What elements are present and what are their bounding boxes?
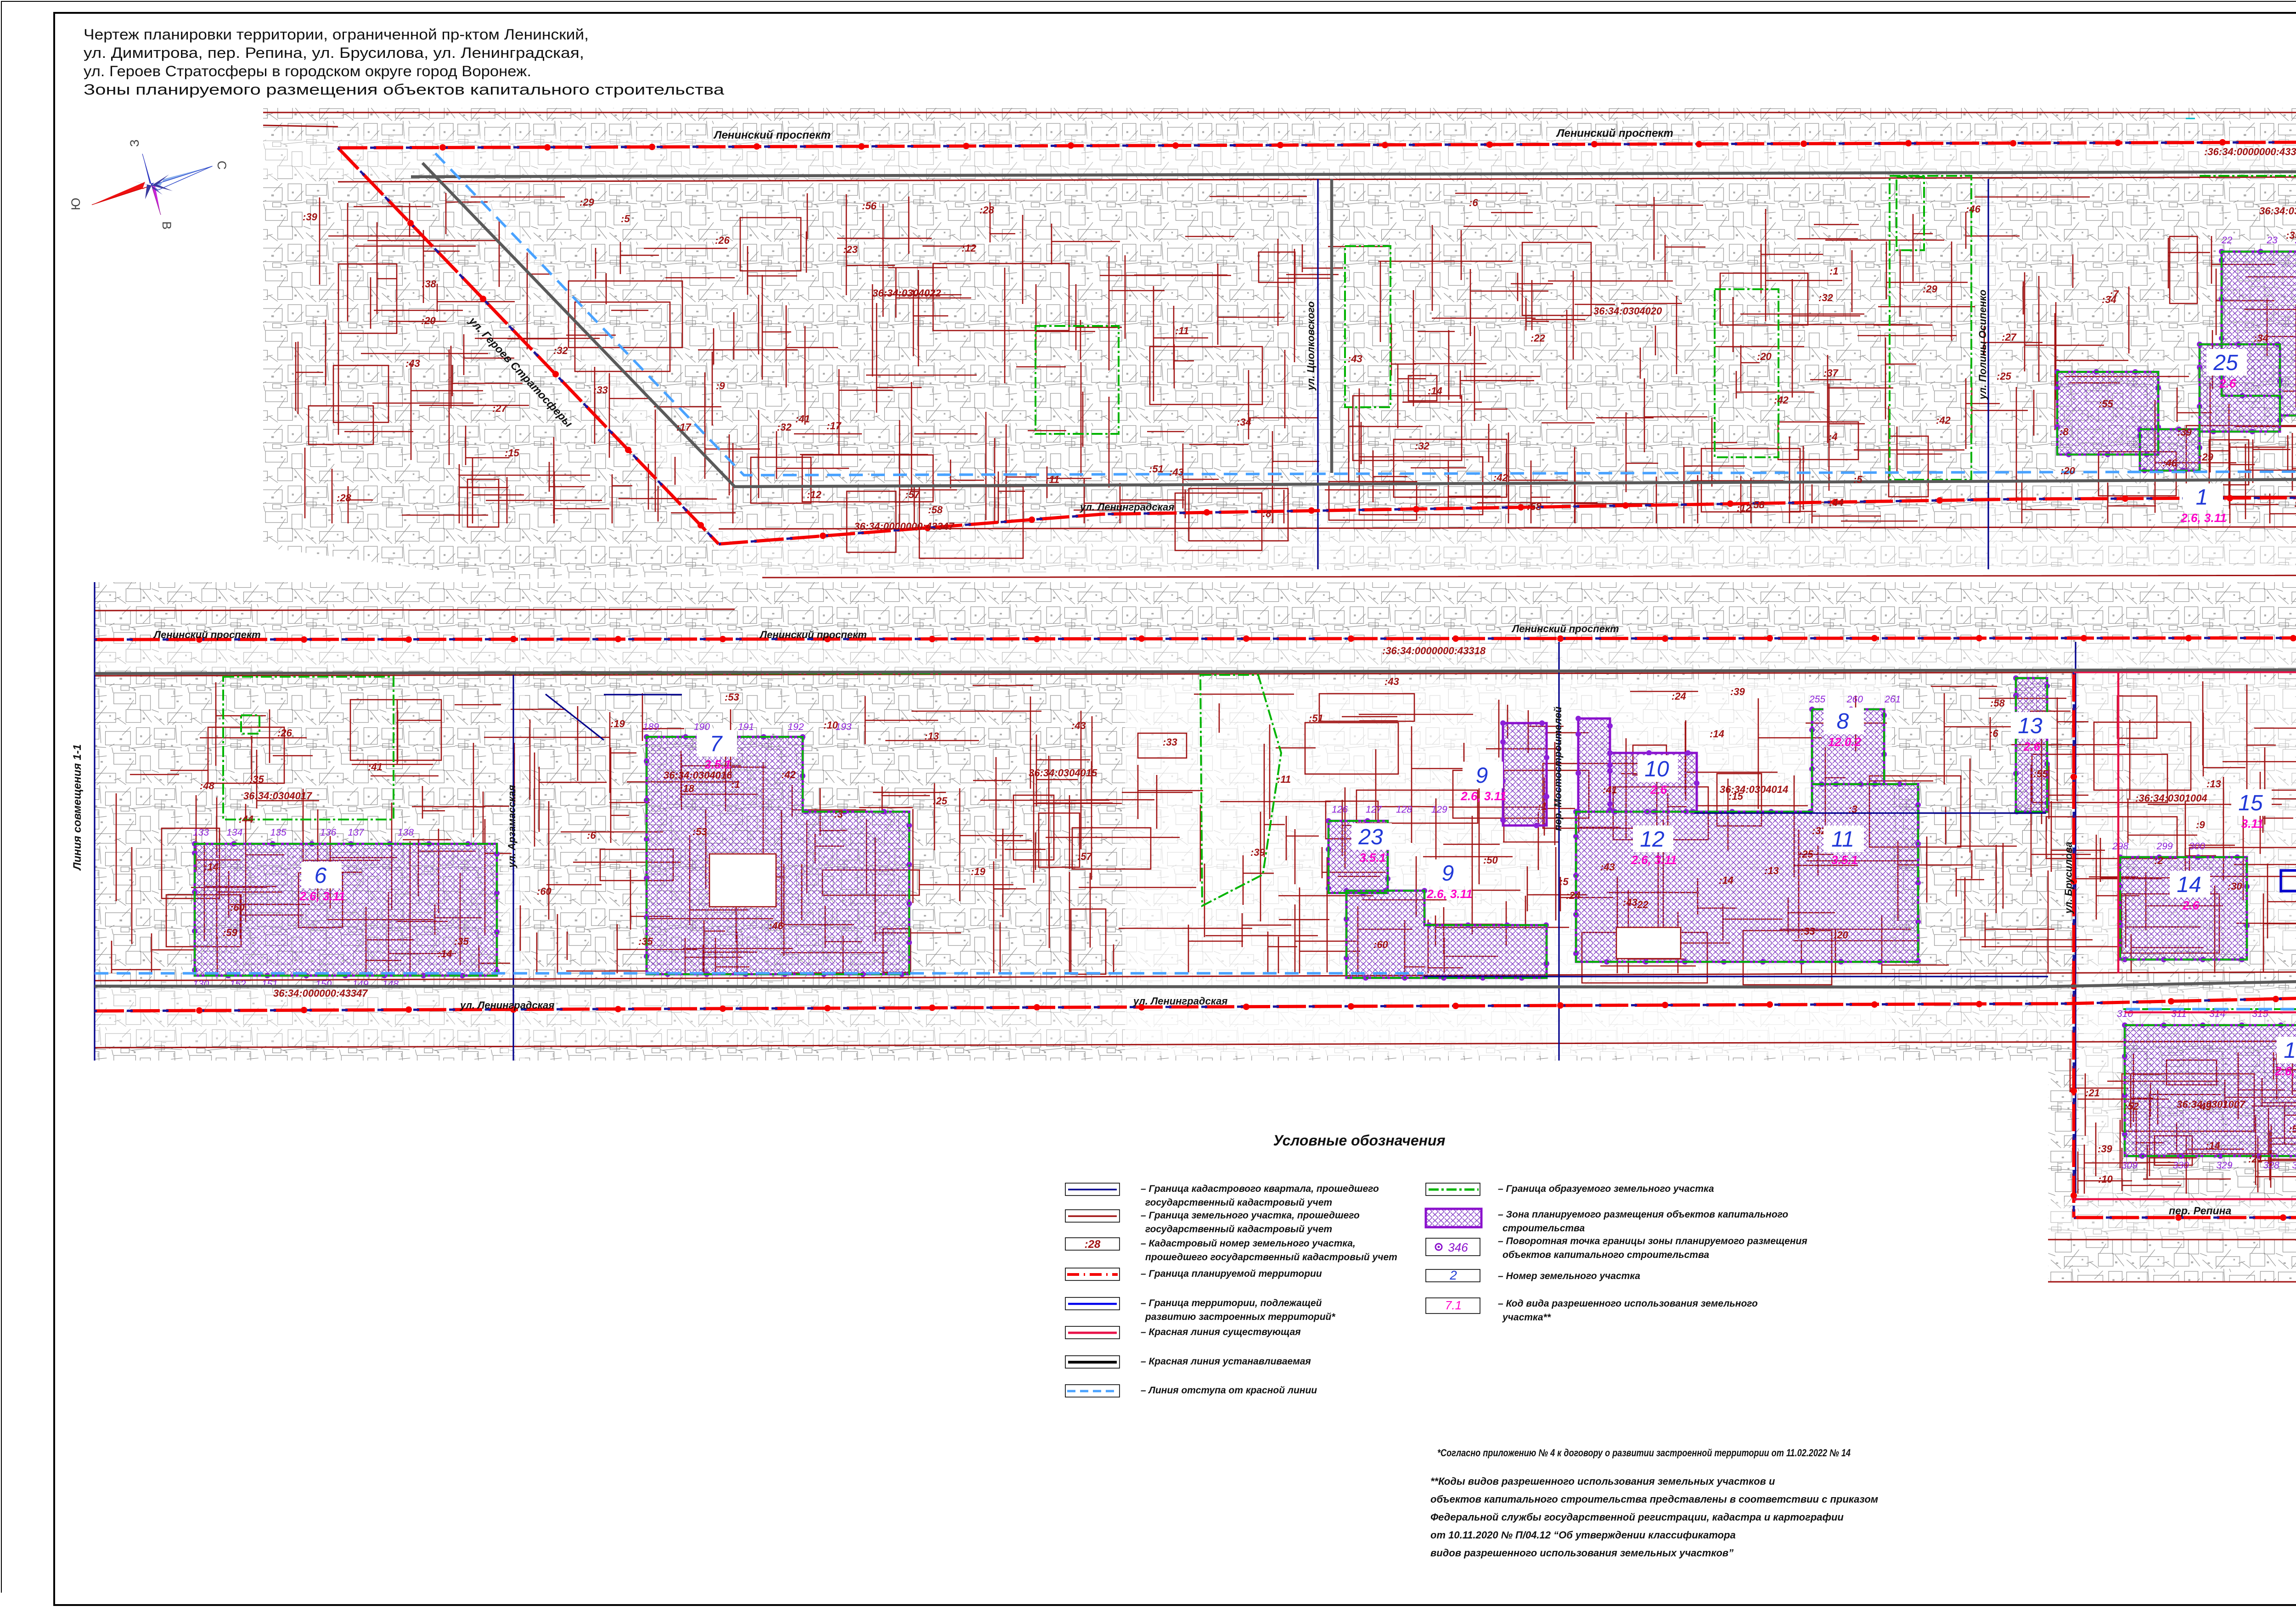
svg-text:Ленинский проспект: Ленинский проспект bbox=[1556, 127, 1673, 140]
svg-text:пер. Мостостроителей: пер. Мостостроителей bbox=[1552, 706, 1564, 831]
svg-text:– Код вида разрешенного исполь: – Код вида разрешенного использования зе… bbox=[1498, 1298, 1758, 1309]
svg-text::58: :58 bbox=[1527, 501, 1542, 512]
svg-text:36:34:0304019: 36:34:0304019 bbox=[2259, 205, 2296, 217]
svg-text:152: 152 bbox=[230, 979, 246, 989]
svg-text::34: :34 bbox=[1237, 416, 1251, 428]
svg-text::41: :41 bbox=[1603, 784, 1617, 796]
svg-text:– Поворотная точка границы зон: – Поворотная точка границы зоны планируе… bbox=[1498, 1236, 1807, 1246]
svg-text::39: :39 bbox=[1250, 847, 1266, 858]
svg-text:130: 130 bbox=[193, 979, 209, 989]
svg-text:– Красная линия существующая: – Красная линия существующая bbox=[1141, 1327, 1301, 1337]
svg-text::32: :32 bbox=[1415, 440, 1430, 452]
svg-text::2: :2 bbox=[2154, 855, 2163, 866]
svg-text::52: :52 bbox=[2124, 1100, 2139, 1112]
svg-text::35: :35 bbox=[2286, 230, 2296, 241]
svg-text:2.6: 2.6 bbox=[2219, 376, 2236, 390]
svg-text::14: :14 bbox=[1710, 728, 1724, 740]
svg-text:2.6, 3.11: 2.6, 3.11 bbox=[1460, 789, 1506, 803]
svg-text:от 10.11.2020 № П/04.12 “Об ут: от 10.11.2020 № П/04.12 “Об утверждении … bbox=[1430, 1529, 1736, 1541]
svg-text:Ленинский проспект: Ленинский проспект bbox=[1511, 623, 1619, 634]
svg-text:15: 15 bbox=[2238, 791, 2263, 815]
svg-text:189: 189 bbox=[643, 722, 659, 732]
svg-text:3.11: 3.11 bbox=[2241, 817, 2264, 831]
svg-text:128: 128 bbox=[1396, 804, 1412, 815]
svg-text::35: :35 bbox=[249, 774, 264, 785]
svg-text::59: :59 bbox=[223, 927, 238, 938]
svg-text::44: :44 bbox=[1829, 497, 1844, 508]
svg-text:137: 137 bbox=[348, 827, 365, 838]
svg-text:138: 138 bbox=[398, 827, 414, 838]
svg-text::49: :49 bbox=[2197, 1101, 2212, 1112]
svg-text:– Номер земельного участка: – Номер земельного участка bbox=[1498, 1271, 1640, 1281]
svg-text:309: 309 bbox=[2122, 1160, 2138, 1171]
svg-text::26: :26 bbox=[277, 727, 293, 739]
svg-text::46: :46 bbox=[769, 920, 784, 932]
svg-text::29: :29 bbox=[1923, 283, 1938, 295]
svg-text:– Зона планируемого размещения: – Зона планируемого размещения объектов … bbox=[1498, 1209, 1788, 1220]
svg-text::39: :39 bbox=[2098, 1143, 2113, 1155]
svg-text:– Граница образуемого земельно: – Граница образуемого земельного участка bbox=[1498, 1184, 1714, 1194]
svg-text::17: :17 bbox=[827, 420, 842, 432]
svg-text::10: :10 bbox=[823, 719, 838, 731]
svg-text::33: :33 bbox=[593, 384, 608, 396]
svg-text:– Красная линия устанавливаема: – Красная линия устанавливаемая bbox=[1141, 1356, 1311, 1367]
svg-text:327: 327 bbox=[2292, 1160, 2296, 1171]
svg-text::46: :46 bbox=[1966, 203, 1981, 215]
svg-text::34: :34 bbox=[2102, 294, 2116, 305]
svg-text::26: :26 bbox=[715, 235, 730, 246]
svg-text::25: :25 bbox=[933, 795, 948, 807]
svg-text::14: :14 bbox=[2206, 1140, 2220, 1151]
svg-text:23: 23 bbox=[2266, 235, 2278, 246]
svg-text::58: :58 bbox=[2294, 498, 2296, 509]
svg-text:*Согласно приложению № 4 к: *Согласно приложению № 4 к договору о ра… bbox=[1437, 1447, 1851, 1459]
svg-text::1: :1 bbox=[1538, 801, 1547, 812]
svg-text::36:34:0000000:43318: :36:34:0000000:43318 bbox=[1382, 645, 1486, 657]
svg-text:127: 127 bbox=[1366, 804, 1382, 815]
svg-text::25: :25 bbox=[1997, 370, 2012, 382]
svg-text::43: :43 bbox=[1348, 353, 1362, 365]
svg-text::22: :22 bbox=[1634, 899, 1649, 910]
svg-text::11: :11 bbox=[1046, 474, 1059, 485]
svg-text::42: :42 bbox=[1936, 415, 1951, 426]
svg-text::11: :11 bbox=[1277, 774, 1291, 785]
svg-text:В: В bbox=[160, 221, 174, 230]
svg-text::36:34:0000000:43318: :36:34:0000000:43318 bbox=[2204, 146, 2296, 157]
svg-text:16: 16 bbox=[2284, 1038, 2296, 1063]
svg-text:– Линия отступа от красной лин: – Линия отступа от красной линии bbox=[1141, 1385, 1317, 1396]
svg-text:260: 260 bbox=[1846, 694, 1863, 705]
svg-text:ул. Брусилова: ул. Брусилова bbox=[2063, 842, 2074, 914]
svg-text:ул. Ленинградская: ул. Ленинградская bbox=[460, 999, 554, 1011]
svg-text:З: З bbox=[128, 140, 141, 147]
svg-text:– Граница территории, подлежащ: – Граница территории, подлежащей bbox=[1141, 1298, 1322, 1308]
svg-text::20: :20 bbox=[2060, 465, 2076, 477]
svg-text::43: :43 bbox=[1071, 720, 1086, 731]
svg-text::4: :4 bbox=[1829, 431, 1838, 443]
svg-text::44: :44 bbox=[239, 814, 253, 825]
svg-text::32: :32 bbox=[553, 345, 568, 356]
svg-text:36:34:0304022: 36:34:0304022 bbox=[872, 287, 941, 299]
svg-text:строительства: строительства bbox=[1503, 1223, 1585, 1234]
svg-text::1: :1 bbox=[731, 779, 740, 790]
svg-text:255: 255 bbox=[1809, 694, 1825, 705]
svg-text::41: :41 bbox=[368, 761, 383, 773]
svg-text:129: 129 bbox=[1431, 804, 1447, 815]
svg-text:ул. Арзамасская: ул. Арзамасская bbox=[506, 785, 518, 868]
svg-text:ул. Ленинградская: ул. Ленинградская bbox=[1133, 995, 1227, 1007]
svg-text::23: :23 bbox=[843, 244, 858, 255]
svg-text::46: :46 bbox=[2162, 457, 2178, 469]
svg-text:126: 126 bbox=[1332, 804, 1348, 815]
svg-text::50: :50 bbox=[1483, 854, 1498, 866]
svg-text:8: 8 bbox=[1837, 709, 1849, 734]
svg-text::8: :8 bbox=[2060, 426, 2069, 438]
svg-text:135: 135 bbox=[270, 827, 287, 838]
svg-text:10: 10 bbox=[1644, 757, 1669, 781]
svg-text::53: :53 bbox=[692, 826, 707, 837]
svg-text:ул. Полины Осипенко: ул. Полины Осипенко bbox=[1977, 290, 1988, 400]
svg-text::12: :12 bbox=[1737, 502, 1752, 514]
svg-text::53: :53 bbox=[725, 691, 739, 703]
svg-text::24: :24 bbox=[1566, 890, 1581, 901]
svg-text::51: :51 bbox=[1309, 713, 1323, 724]
svg-text::42: :42 bbox=[1774, 394, 1789, 406]
svg-text::28: :28 bbox=[1085, 1238, 1101, 1251]
svg-text:13: 13 bbox=[2018, 714, 2043, 738]
svg-text:2.6, 3.11: 2.6, 3.11 bbox=[1426, 887, 1472, 901]
svg-text:346: 346 bbox=[1448, 1241, 1468, 1254]
svg-text::39: :39 bbox=[1730, 686, 1745, 697]
svg-text::12: :12 bbox=[807, 489, 822, 500]
svg-text:2.6, 3.11: 2.6, 3.11 bbox=[2180, 511, 2226, 525]
svg-text::48: :48 bbox=[200, 780, 215, 791]
svg-text:11: 11 bbox=[1831, 827, 1854, 852]
svg-text::35: :35 bbox=[454, 936, 469, 947]
svg-text::3: :3 bbox=[834, 808, 843, 820]
svg-text:объектов капитального строител: объектов капитального строительства bbox=[1503, 1250, 1709, 1260]
svg-text::60: :60 bbox=[1373, 939, 1389, 950]
svg-text::12: :12 bbox=[962, 242, 977, 254]
svg-text:Ленинский проспект: Ленинский проспект bbox=[153, 629, 261, 640]
svg-text::33: :33 bbox=[1801, 926, 1815, 937]
svg-text:329: 329 bbox=[2216, 1160, 2232, 1171]
svg-text::55: :55 bbox=[2033, 768, 2048, 780]
svg-text:2.6, 3.11: 2.6, 3.11 bbox=[2274, 1064, 2296, 1078]
svg-text::13: :13 bbox=[2206, 778, 2221, 790]
svg-text::22: :22 bbox=[1531, 332, 1546, 344]
svg-text::32: :32 bbox=[1818, 292, 1834, 303]
svg-text::20: :20 bbox=[1834, 929, 1849, 941]
svg-text::13: :13 bbox=[1764, 865, 1779, 876]
svg-text::34: :34 bbox=[2254, 332, 2268, 344]
svg-text:22: 22 bbox=[2221, 235, 2233, 246]
svg-text::43: :43 bbox=[405, 358, 420, 369]
svg-text::43: :43 bbox=[1600, 861, 1615, 873]
svg-text:2.6, 3.11: 2.6, 3.11 bbox=[299, 889, 345, 903]
svg-text::58: :58 bbox=[1990, 697, 2005, 709]
svg-text:1: 1 bbox=[2196, 485, 2208, 510]
svg-text::38: :38 bbox=[422, 278, 437, 290]
svg-text:6: 6 bbox=[315, 864, 327, 888]
svg-text::14: :14 bbox=[438, 948, 452, 960]
svg-text:ул. Димитрова, пер. Репина, ул: ул. Димитрова, пер. Репина, ул. Брусилов… bbox=[84, 45, 584, 61]
svg-text:7: 7 bbox=[710, 732, 723, 756]
svg-text::56: :56 bbox=[862, 200, 877, 212]
svg-text:9: 9 bbox=[1476, 763, 1488, 788]
svg-text::6: :6 bbox=[587, 830, 596, 841]
svg-text:Ленинский проспект: Ленинский проспект bbox=[713, 129, 831, 141]
svg-text::43: :43 bbox=[1169, 466, 1184, 478]
svg-text::14: :14 bbox=[204, 861, 219, 873]
svg-text:328: 328 bbox=[2263, 1160, 2279, 1171]
svg-text:299: 299 bbox=[2156, 841, 2173, 852]
svg-text:36:34:000000:43347: 36:34:000000:43347 bbox=[273, 988, 368, 999]
svg-text:192: 192 bbox=[788, 722, 804, 732]
svg-text::27: :27 bbox=[492, 403, 508, 414]
svg-text:ул. Циолковского: ул. Циолковского bbox=[1305, 301, 1317, 391]
svg-text:12.0.2: 12.0.2 bbox=[1828, 735, 1862, 749]
svg-text:участка**: участка** bbox=[1502, 1312, 1551, 1323]
svg-text::14: :14 bbox=[1428, 385, 1442, 397]
svg-text:23: 23 bbox=[1358, 825, 1383, 849]
svg-text::37: :37 bbox=[1823, 367, 1839, 379]
svg-text::29: :29 bbox=[2199, 451, 2214, 463]
svg-text::28: :28 bbox=[337, 492, 352, 504]
svg-text::36:34:0301004: :36:34:0301004 bbox=[2135, 792, 2207, 804]
svg-text:Зоны планируемого размещения о: Зоны планируемого размещения объектов ка… bbox=[84, 81, 724, 98]
svg-text::21: :21 bbox=[2085, 1087, 2100, 1099]
svg-text:14: 14 bbox=[2177, 873, 2201, 897]
svg-text::29: :29 bbox=[580, 196, 595, 208]
svg-text::42: :42 bbox=[1493, 472, 1508, 483]
svg-text::27: :27 bbox=[2002, 331, 2017, 343]
svg-text:Ю: Ю bbox=[69, 198, 83, 210]
svg-text:С: С bbox=[215, 161, 229, 170]
svg-text::19: :19 bbox=[610, 718, 625, 730]
svg-text:3.5.1: 3.5.1 bbox=[1359, 851, 1386, 864]
svg-text::9: :9 bbox=[2196, 819, 2205, 831]
svg-text::11: :11 bbox=[1175, 325, 1189, 337]
svg-text::53: :53 bbox=[2289, 1123, 2296, 1135]
svg-text:Федеральной службы государстве: Федеральной службы государственной регис… bbox=[1430, 1511, 1844, 1523]
svg-text:25: 25 bbox=[2213, 351, 2238, 375]
svg-text::60: :60 bbox=[537, 886, 552, 897]
svg-text::39: :39 bbox=[2177, 427, 2192, 438]
svg-text::5: :5 bbox=[1559, 876, 1569, 887]
svg-text::17: :17 bbox=[676, 421, 692, 433]
svg-text:36:34:0304017: 36:34:0304017 bbox=[243, 790, 313, 802]
svg-text:развитию застроенных территори: развитию застроенных территорий* bbox=[1145, 1312, 1335, 1322]
svg-text::21: :21 bbox=[2248, 1153, 2263, 1165]
svg-text::20: :20 bbox=[421, 315, 436, 326]
svg-text::13: :13 bbox=[924, 730, 939, 742]
svg-text:– Граница планируемой территор: – Граница планируемой территории bbox=[1141, 1269, 1322, 1279]
svg-text::42: :42 bbox=[781, 769, 796, 780]
svg-text:7.1: 7.1 bbox=[1445, 1298, 1462, 1312]
svg-text:2.6: 2.6 bbox=[1650, 783, 1667, 797]
svg-text:298: 298 bbox=[2112, 841, 2128, 852]
svg-text::30: :30 bbox=[2228, 881, 2243, 892]
svg-text::60: :60 bbox=[230, 902, 245, 913]
svg-text:36:34:0000000:43347: 36:34:0000000:43347 bbox=[854, 521, 955, 532]
svg-text::32: :32 bbox=[777, 421, 792, 433]
svg-text::58: :58 bbox=[1750, 499, 1765, 511]
svg-text::43: :43 bbox=[1384, 676, 1399, 687]
svg-text::39: :39 bbox=[303, 211, 318, 223]
svg-text::15: :15 bbox=[505, 447, 520, 459]
svg-text::18: :18 bbox=[680, 783, 695, 794]
svg-text::5: :5 bbox=[1853, 474, 1863, 485]
svg-text::57: :57 bbox=[905, 489, 921, 500]
svg-text::3: :3 bbox=[1848, 803, 1857, 815]
svg-text:государственный кадастровый уч: государственный кадастровый учет bbox=[1145, 1197, 1332, 1208]
svg-text:– Граница кадастрового квартал: – Граница кадастрового квартала, прошедш… bbox=[1141, 1184, 1379, 1194]
svg-text:2.6: 2.6 bbox=[2023, 740, 2041, 753]
svg-text::41: :41 bbox=[795, 413, 810, 425]
svg-text::58: :58 bbox=[928, 504, 943, 516]
svg-text:пер. Репина: пер. Репина bbox=[2169, 1205, 2231, 1217]
svg-text::6: :6 bbox=[1989, 728, 1998, 739]
svg-text:Условные обозначения: Условные обозначения bbox=[1273, 1132, 1446, 1149]
svg-text:– Граница земельного участка,: – Граница земельного участка, прошедшего bbox=[1141, 1210, 1360, 1221]
svg-text:видов разрешенного использован: видов разрешенного использования земельн… bbox=[1430, 1547, 1733, 1559]
svg-text::8: :8 bbox=[1262, 508, 1272, 519]
svg-text:ул. Ленинградская: ул. Ленинградская bbox=[1080, 501, 1174, 513]
svg-text:Чертеж планировки территории,: Чертеж планировки территории, ограниченн… bbox=[84, 26, 589, 43]
svg-text::5: :5 bbox=[621, 213, 630, 225]
svg-text:36:34:0304015: 36:34:0304015 bbox=[1029, 767, 1097, 779]
svg-text::57: :57 bbox=[1077, 851, 1093, 862]
svg-text::9: :9 bbox=[716, 380, 725, 392]
svg-text:ул. Героев Стратосферы в город: ул. Героев Стратосферы в городском округ… bbox=[84, 63, 531, 79]
svg-text:330: 330 bbox=[2173, 1160, 2189, 1171]
svg-text::25: :25 bbox=[1799, 848, 1814, 860]
svg-text::33: :33 bbox=[1163, 736, 1177, 748]
svg-text:– Кадастровый номер земельно: – Кадастровый номер земельного участка, bbox=[1141, 1238, 1356, 1249]
svg-text:133: 133 bbox=[193, 827, 209, 838]
svg-text:134: 134 bbox=[226, 827, 242, 838]
svg-text:3.5.1: 3.5.1 bbox=[704, 758, 731, 771]
svg-text::1: :1 bbox=[1829, 265, 1839, 277]
svg-text:191: 191 bbox=[738, 722, 754, 732]
svg-text::19: :19 bbox=[971, 866, 986, 877]
svg-text:36:34:0304020: 36:34:0304020 bbox=[1593, 305, 1662, 317]
svg-text:136: 136 bbox=[320, 827, 336, 838]
svg-text:**Коды видов разрешенного испо: **Коды видов разрешенного использования … bbox=[1430, 1476, 1775, 1487]
svg-text::55: :55 bbox=[2099, 398, 2114, 410]
svg-text::28: :28 bbox=[979, 204, 995, 216]
svg-text:300: 300 bbox=[2189, 841, 2205, 852]
svg-text:прошедшего государственный кад: прошедшего государственный кадастровый у… bbox=[1145, 1252, 1397, 1263]
svg-text:Ленинский проспект: Ленинский проспект bbox=[759, 629, 867, 640]
svg-text::24: :24 bbox=[1671, 690, 1686, 702]
svg-text::14: :14 bbox=[1719, 875, 1733, 886]
svg-text:3.5.1: 3.5.1 bbox=[1831, 853, 1858, 867]
svg-text:12: 12 bbox=[1640, 827, 1664, 852]
svg-text::20: :20 bbox=[1757, 351, 1772, 362]
svg-text:Линия совмещения 1-1: Линия совмещения 1-1 bbox=[71, 744, 84, 871]
svg-text::15: :15 bbox=[1728, 791, 1744, 802]
svg-text:2.6: 2.6 bbox=[2182, 898, 2200, 912]
svg-text:2: 2 bbox=[1449, 1268, 1457, 1282]
svg-text:261: 261 bbox=[1884, 694, 1901, 705]
svg-text:9: 9 bbox=[1442, 861, 1454, 886]
svg-text:2.6, 3.11: 2.6, 3.11 bbox=[1631, 853, 1677, 867]
svg-text::51: :51 bbox=[1149, 463, 1164, 475]
svg-text::6: :6 bbox=[1469, 197, 1478, 208]
svg-text::10: :10 bbox=[2098, 1173, 2113, 1185]
svg-text::35: :35 bbox=[638, 936, 653, 947]
svg-text:государственный кадастровый уч: государственный кадастровый учет bbox=[1145, 1224, 1332, 1235]
svg-text:объектов капитального строител: объектов капитального строительства пред… bbox=[1430, 1493, 1878, 1505]
